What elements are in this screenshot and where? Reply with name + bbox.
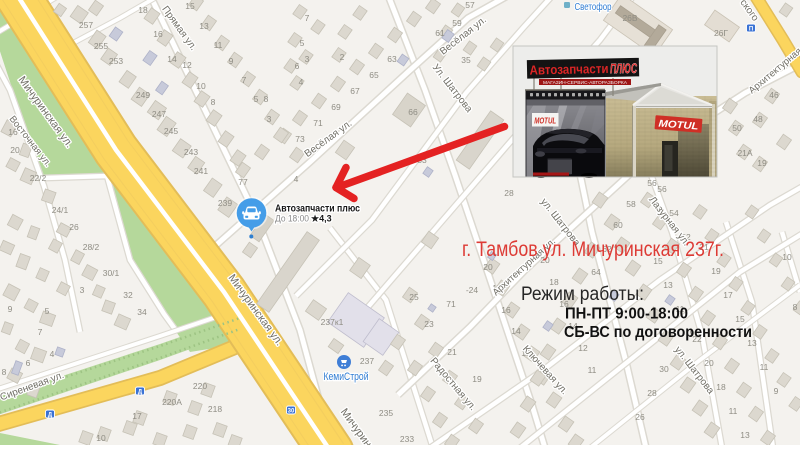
- svg-text:12: 12: [578, 343, 588, 353]
- svg-text:18: 18: [716, 382, 726, 392]
- svg-text:15: 15: [735, 314, 745, 324]
- svg-text:35: 35: [461, 55, 471, 65]
- svg-text:26: 26: [69, 222, 79, 232]
- svg-text:220А: 220А: [162, 397, 182, 407]
- svg-text:18: 18: [138, 5, 148, 15]
- svg-text:61: 61: [435, 28, 445, 38]
- svg-text:19: 19: [757, 158, 767, 168]
- svg-text:10: 10: [96, 433, 106, 443]
- svg-text:69: 69: [331, 102, 341, 112]
- svg-text:21А: 21А: [737, 148, 752, 158]
- svg-text:17: 17: [723, 290, 733, 300]
- svg-text:Режим работы:: Режим работы:: [521, 284, 644, 305]
- svg-text:71: 71: [446, 299, 456, 309]
- svg-text:9: 9: [774, 386, 779, 396]
- svg-text:56: 56: [647, 178, 657, 188]
- svg-text:30: 30: [659, 364, 669, 374]
- svg-text:10: 10: [196, 81, 206, 91]
- svg-text:16: 16: [153, 29, 163, 39]
- svg-text:9: 9: [229, 56, 234, 66]
- svg-text:233: 233: [400, 434, 414, 444]
- svg-text:13: 13: [740, 430, 750, 440]
- svg-text:Светофор: Светофор: [575, 1, 612, 13]
- svg-text:8: 8: [793, 302, 798, 312]
- svg-text:2: 2: [340, 52, 345, 62]
- svg-text:235: 235: [379, 408, 393, 418]
- svg-text:7: 7: [305, 13, 310, 23]
- svg-text:22/2: 22/2: [30, 173, 47, 183]
- svg-text:255: 255: [94, 41, 108, 51]
- svg-text:21: 21: [447, 347, 457, 357]
- svg-text:Автозапчасти: Автозапчасти: [529, 61, 608, 78]
- svg-text:24/1: 24/1: [52, 205, 69, 215]
- svg-text:11: 11: [588, 365, 597, 375]
- svg-text:6: 6: [295, 61, 300, 71]
- svg-text:26Г: 26Г: [714, 28, 728, 38]
- svg-text:57: 57: [465, 0, 475, 10]
- svg-text:220: 220: [193, 381, 207, 391]
- svg-text:5: 5: [300, 38, 305, 48]
- svg-text:243: 243: [184, 147, 198, 157]
- svg-text:3: 3: [80, 285, 85, 295]
- svg-text:12: 12: [182, 60, 192, 70]
- svg-text:28: 28: [647, 388, 657, 398]
- svg-text:5: 5: [45, 306, 50, 316]
- svg-text:11: 11: [214, 40, 223, 50]
- svg-text:15: 15: [185, 1, 195, 11]
- svg-text:23: 23: [424, 319, 434, 329]
- svg-text:67: 67: [350, 86, 360, 96]
- svg-text:14: 14: [511, 326, 521, 336]
- svg-text:28/2: 28/2: [83, 242, 100, 252]
- svg-text:19: 19: [472, 374, 482, 384]
- svg-text:245: 245: [164, 126, 178, 136]
- svg-text:64: 64: [591, 267, 601, 277]
- svg-text:60: 60: [613, 220, 623, 230]
- svg-text:30: 30: [288, 408, 295, 414]
- svg-text:48: 48: [753, 114, 763, 124]
- svg-text:63: 63: [387, 54, 397, 64]
- svg-text:3: 3: [305, 54, 310, 64]
- svg-text:239: 239: [218, 198, 232, 208]
- svg-text:7: 7: [242, 75, 247, 85]
- svg-text:66: 66: [408, 107, 418, 117]
- svg-text:4: 4: [294, 174, 299, 184]
- svg-text:16: 16: [501, 305, 511, 315]
- svg-text:56: 56: [657, 184, 667, 194]
- svg-text:11: 11: [760, 362, 769, 372]
- svg-text:237к1: 237к1: [321, 317, 344, 327]
- svg-text:26: 26: [635, 412, 645, 422]
- svg-text:59: 59: [452, 18, 462, 28]
- svg-text:253: 253: [109, 56, 123, 66]
- svg-text:30/1: 30/1: [103, 268, 120, 278]
- svg-text:247: 247: [152, 109, 166, 119]
- svg-text:4: 4: [299, 77, 304, 87]
- svg-text:237: 237: [360, 356, 374, 366]
- svg-text:13: 13: [663, 280, 673, 290]
- svg-text:71: 71: [313, 118, 323, 128]
- svg-text:MOTUL: MOTUL: [534, 116, 556, 126]
- svg-text:-24: -24: [466, 285, 479, 295]
- svg-text:8: 8: [264, 94, 269, 104]
- svg-text:14: 14: [167, 54, 177, 64]
- svg-text:19: 19: [711, 266, 721, 276]
- svg-text:6: 6: [26, 358, 31, 368]
- svg-text:7: 7: [38, 327, 43, 337]
- svg-text:218: 218: [208, 404, 222, 414]
- svg-text:46: 46: [769, 90, 779, 100]
- svg-text:34: 34: [137, 307, 147, 317]
- svg-text:20: 20: [483, 262, 493, 272]
- svg-text:65: 65: [369, 70, 379, 80]
- svg-text:8: 8: [211, 97, 216, 107]
- svg-text:73: 73: [295, 134, 305, 144]
- svg-text:17: 17: [132, 411, 142, 421]
- svg-text:20: 20: [704, 358, 714, 368]
- svg-text:249: 249: [136, 90, 150, 100]
- svg-text:8: 8: [2, 367, 7, 377]
- svg-text:58: 58: [626, 199, 636, 209]
- svg-text:ПН-ПТ 9:00-18:00: ПН-ПТ 9:00-18:00: [565, 306, 688, 323]
- svg-text:13: 13: [199, 21, 209, 31]
- svg-text:СБ-ВС по договоренности: СБ-ВС по договоренности: [564, 324, 752, 341]
- svg-text:5: 5: [254, 94, 259, 104]
- svg-text:КемиСтрой: КемиСтрой: [324, 371, 369, 383]
- svg-text:77: 77: [238, 177, 248, 187]
- svg-text:Д: Д: [48, 412, 53, 418]
- svg-text:ПЛЮС: ПЛЮС: [610, 61, 638, 77]
- svg-text:До 18:00: До 18:00: [275, 214, 309, 224]
- svg-text:4: 4: [50, 349, 55, 359]
- svg-text:10: 10: [782, 252, 792, 262]
- svg-text:25: 25: [409, 292, 419, 302]
- svg-text:г. Тамбов ул. Мичуринская 237г: г. Тамбов ул. Мичуринская 237г.: [462, 237, 724, 261]
- svg-text:26В: 26В: [622, 13, 637, 23]
- svg-text:Д: Д: [138, 389, 143, 395]
- svg-text:★4,3: ★4,3: [311, 214, 332, 224]
- svg-text:3: 3: [267, 114, 272, 124]
- svg-text:241: 241: [194, 166, 208, 176]
- svg-text:МАГАЗИН-СЕРВИС-АВТОРАЗБОРКА: МАГАЗИН-СЕРВИС-АВТОРАЗБОРКА: [543, 80, 627, 85]
- svg-text:257: 257: [79, 20, 93, 30]
- svg-text:П: П: [749, 26, 753, 32]
- svg-text:28: 28: [504, 188, 514, 198]
- svg-text:20: 20: [10, 145, 20, 155]
- svg-text:9: 9: [8, 304, 13, 314]
- svg-text:50: 50: [732, 123, 742, 133]
- svg-text:32: 32: [123, 290, 133, 300]
- svg-text:11: 11: [729, 406, 738, 416]
